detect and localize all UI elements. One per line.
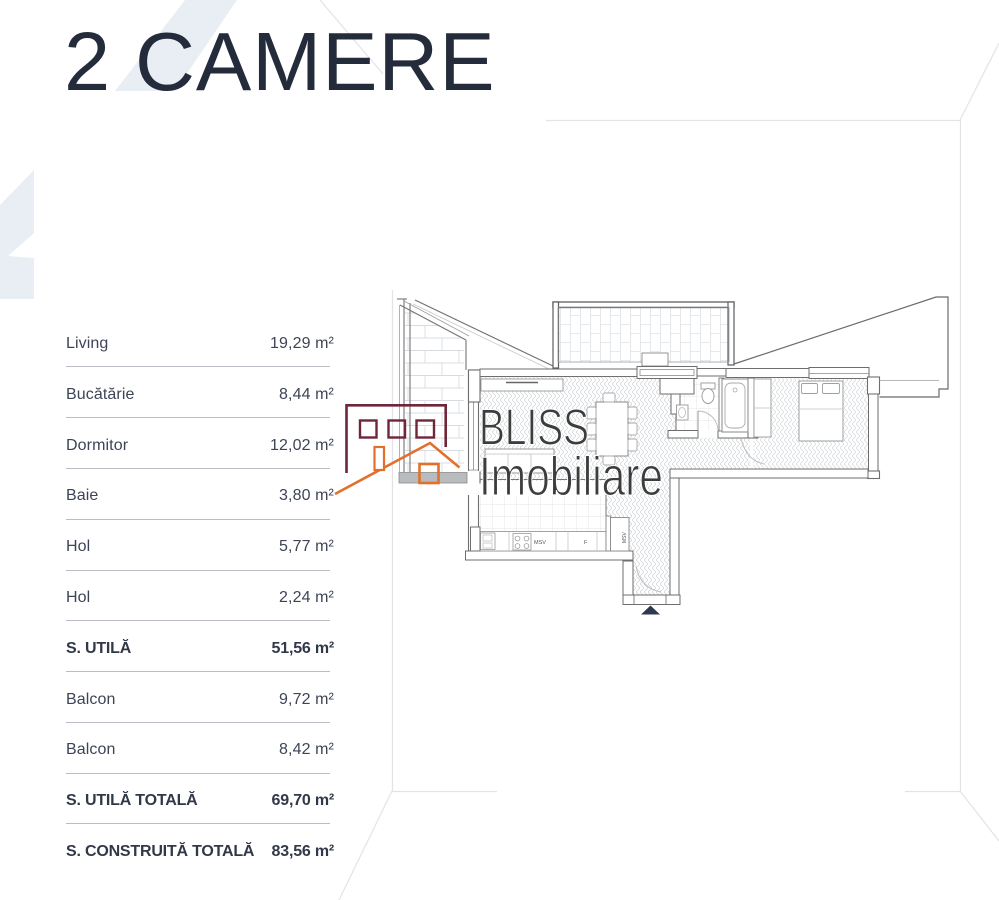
svg-text:Imobiliare: Imobiliare [479, 445, 663, 507]
svg-text:MSV: MSV [534, 540, 546, 546]
svg-text:MSV: MSV [622, 532, 628, 544]
